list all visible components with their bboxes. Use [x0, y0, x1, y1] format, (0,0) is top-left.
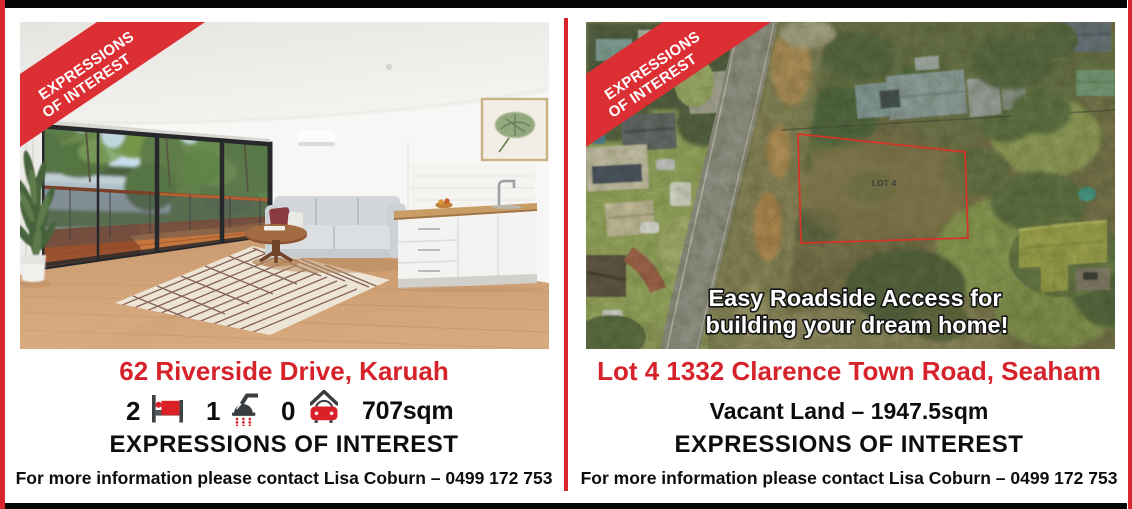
svg-text:LOT 4: LOT 4 — [872, 179, 897, 188]
svg-text:building your dream home!: building your dream home! — [706, 312, 1009, 338]
svg-text:Easy Roadside Access for: Easy Roadside Access for — [708, 285, 1001, 311]
